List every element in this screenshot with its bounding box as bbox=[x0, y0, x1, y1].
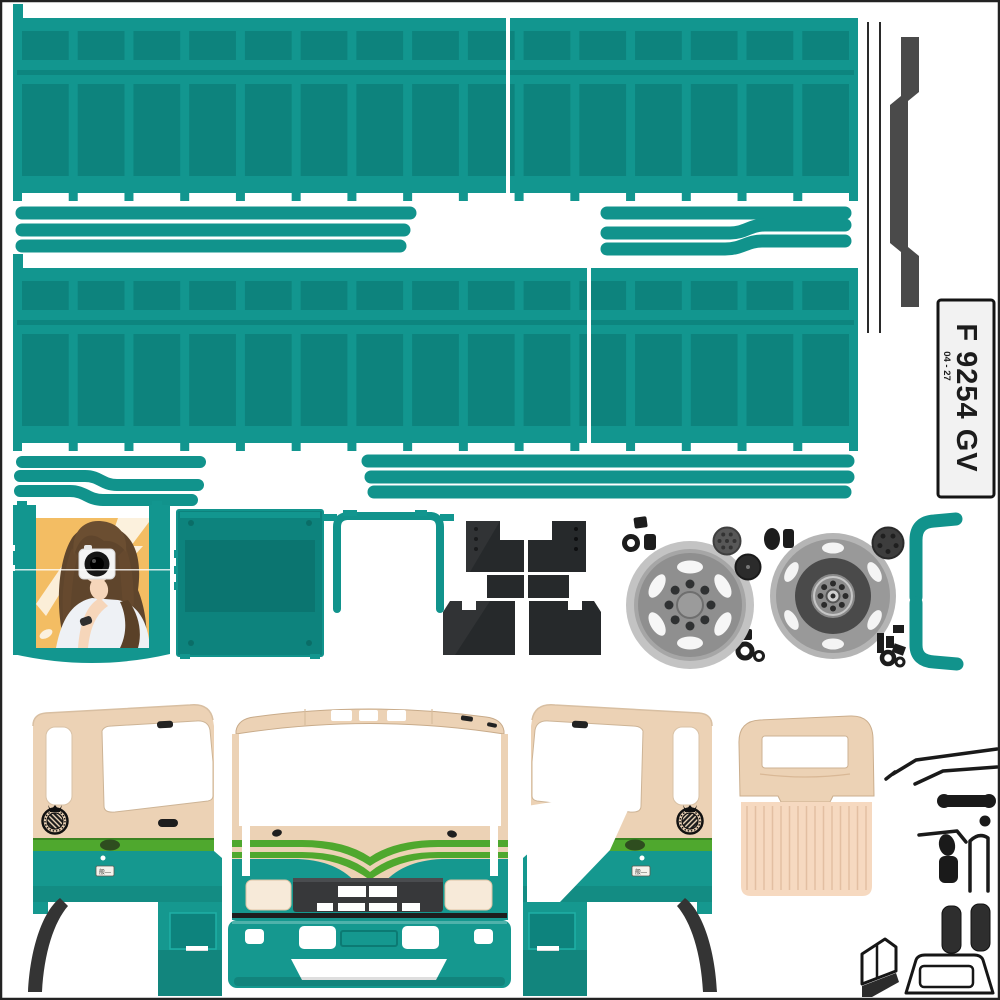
grille-bar bbox=[232, 913, 507, 918]
door-placard-left: 般— bbox=[96, 866, 114, 876]
cab-roof-visor bbox=[236, 709, 504, 734]
trim-strips-top-left bbox=[22, 213, 410, 246]
svg-text:般—: 般— bbox=[635, 868, 647, 876]
window-glass-outline bbox=[862, 939, 899, 997]
bumper bbox=[228, 920, 511, 988]
truck-livery-sheet: F 9254 GV 04 - 27 bbox=[0, 0, 1000, 1000]
license-plate: F 9254 GV 04 - 27 bbox=[938, 300, 994, 497]
chassis-rail bbox=[890, 37, 919, 307]
svg-text:般—: 般— bbox=[99, 868, 111, 876]
bed-front-panel bbox=[174, 510, 323, 659]
hubcap-part bbox=[714, 528, 741, 555]
sheet-canvas: F 9254 GV 04 - 27 bbox=[0, 0, 1000, 1000]
bumper-trim-outline bbox=[906, 955, 993, 993]
trim-strips-mid-left bbox=[20, 462, 200, 500]
bed-side-panel-2 bbox=[13, 254, 858, 451]
panel-joint-slit bbox=[506, 14, 510, 206]
fender-trim-brackets bbox=[916, 519, 957, 664]
front-wheel bbox=[626, 541, 754, 669]
rear-cab-panel bbox=[739, 716, 874, 896]
trim-strips-top-right bbox=[607, 213, 845, 249]
bumper-opening bbox=[291, 959, 447, 980]
cab-side-left bbox=[28, 705, 222, 996]
photo-panel bbox=[11, 501, 170, 663]
wiper-blades bbox=[886, 749, 997, 784]
trim-strips-mid-right bbox=[368, 461, 848, 492]
bed-side-panel bbox=[13, 4, 858, 201]
plate-serial-text: F 9254 GV bbox=[950, 323, 982, 472]
mudflap-set bbox=[443, 521, 601, 655]
cab-front-panel bbox=[228, 734, 511, 988]
headlight-left bbox=[299, 926, 336, 949]
bed-frame-part bbox=[323, 510, 454, 609]
plate-expiry-text: 04 - 27 bbox=[941, 351, 952, 381]
door-mirror-parts bbox=[919, 794, 996, 891]
grille bbox=[246, 878, 492, 912]
door-placard-right: 般— bbox=[632, 866, 650, 876]
mirror-glass-pair bbox=[942, 904, 990, 953]
girl-photo-illustration bbox=[36, 518, 152, 648]
antenna-rods bbox=[867, 22, 881, 333]
brake-drum-part bbox=[736, 555, 761, 580]
panel-joint-slit bbox=[587, 264, 591, 456]
headlight-right bbox=[402, 926, 439, 949]
